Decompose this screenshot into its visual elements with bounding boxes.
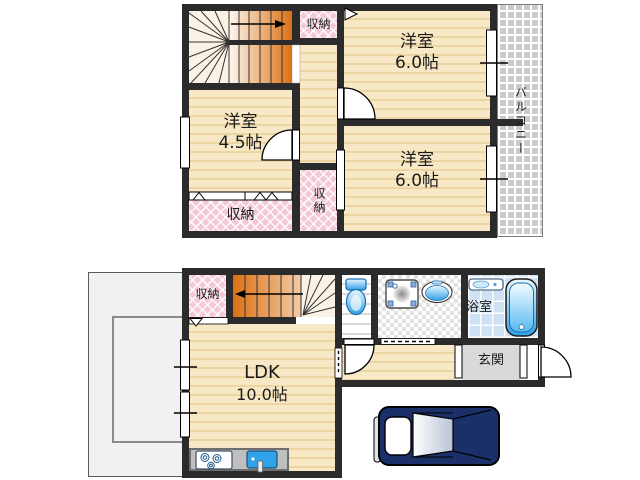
door-jamb: [520, 345, 527, 378]
wall: [189, 83, 292, 90]
room-name: 洋室: [189, 112, 292, 133]
room-size: 6.0帖: [344, 171, 490, 192]
wall: [292, 38, 344, 45]
wall: [182, 231, 497, 238]
room-label-bedroom-left: 洋室 4.5帖: [189, 112, 292, 155]
wall: [182, 4, 497, 11]
wall: [182, 471, 342, 478]
wall: [490, 4, 497, 238]
car-icon: [374, 407, 499, 465]
wall: [335, 268, 342, 478]
kitchen-counter: [189, 448, 289, 471]
toilet-room: [342, 275, 371, 338]
corridor-2f: [300, 45, 337, 163]
balcony-label: バルコニー: [497, 4, 543, 237]
door-swing-icon: [541, 347, 571, 377]
door-mark-icon: [193, 193, 205, 201]
closet-sliding-door: [189, 192, 292, 200]
washroom: [378, 275, 461, 338]
wall: [342, 338, 538, 345]
room-label-ldk: LDK 10.0帖: [189, 362, 335, 405]
closet-label: 収納: [189, 207, 292, 225]
wall: [342, 380, 545, 387]
wall: [371, 275, 378, 338]
room-label-bedroom-bottom: 洋室 6.0帖: [344, 150, 490, 193]
entrance-label: 玄関: [462, 353, 520, 369]
closet-label: 収納: [300, 172, 337, 229]
door-jamb: [455, 345, 462, 378]
closet-label: 収納: [300, 17, 337, 32]
wall: [182, 268, 189, 478]
stairs-up-icon: [189, 11, 292, 83]
room-size: 10.0帖: [189, 385, 335, 405]
wall: [182, 4, 189, 238]
wall: [538, 268, 545, 387]
room-name: 洋室: [344, 150, 490, 171]
hallway: [342, 345, 455, 380]
door-mark-icon: [254, 193, 266, 201]
wall: [182, 317, 342, 324]
closet-label: 収納: [189, 287, 226, 302]
room-name: 洋室: [344, 32, 490, 53]
bathroom-label: 浴室: [466, 300, 506, 316]
wall: [300, 163, 337, 170]
floor-plan-canvas: 洋室 6.0帖 洋室 4.5帖 洋室 6.0帖 収納 収納 収納 バルコニー 収…: [0, 0, 640, 480]
yard-inner-outline: [112, 316, 188, 443]
wall: [182, 268, 545, 275]
stairs-down-icon: [233, 275, 335, 317]
room-size: 6.0帖: [344, 53, 490, 74]
wall: [226, 275, 233, 317]
room-label-bedroom-top: 洋室 6.0帖: [344, 32, 490, 75]
door-mark-icon: [266, 193, 278, 201]
room-name: LDK: [189, 362, 335, 385]
wall: [344, 119, 490, 126]
room-size: 4.5帖: [189, 133, 292, 154]
